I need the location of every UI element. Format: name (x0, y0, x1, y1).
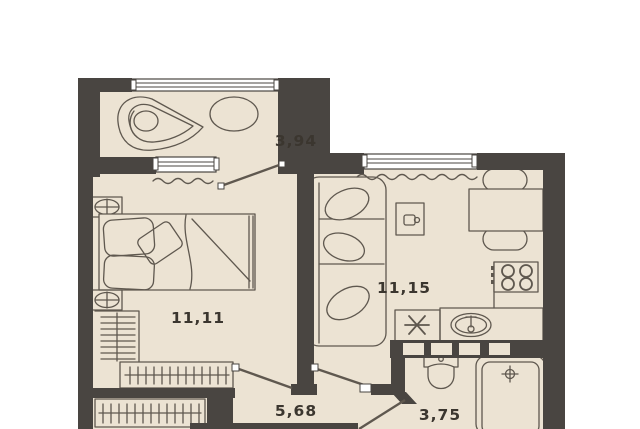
hallway-area-label: 5,68 (275, 402, 317, 420)
living-area-label: 11,15 (377, 279, 431, 297)
bedroom-bottom-wall (93, 388, 235, 398)
bedroom-living-wall-cap (291, 384, 317, 395)
bathroom-area-label: 3,75 (419, 406, 461, 424)
bedroom-area-label: 11,11 (171, 309, 225, 327)
left-outer-wall (78, 155, 93, 429)
bathroom-left-wall (391, 358, 405, 395)
vent-shaft-wall (390, 340, 543, 358)
bedroom-balcony-window (153, 157, 219, 172)
bedroom-balcony-wall (93, 157, 156, 174)
living-door-jamb (371, 384, 391, 395)
balcony-area-label: 3,94 (275, 132, 317, 150)
entrance-wall-bottom (190, 423, 358, 429)
balcony-window (131, 79, 279, 91)
stove-icon (491, 262, 538, 292)
right-outer-wall (543, 153, 565, 429)
top-middle-wall (278, 153, 364, 174)
bedroom-living-wall (297, 172, 314, 393)
floor-plan-image: 3,94 11,15 11,11 5,68 3,75 (0, 0, 640, 429)
double-bed-icon (99, 214, 255, 290)
sofa-icon (306, 177, 386, 346)
living-window (362, 154, 477, 169)
